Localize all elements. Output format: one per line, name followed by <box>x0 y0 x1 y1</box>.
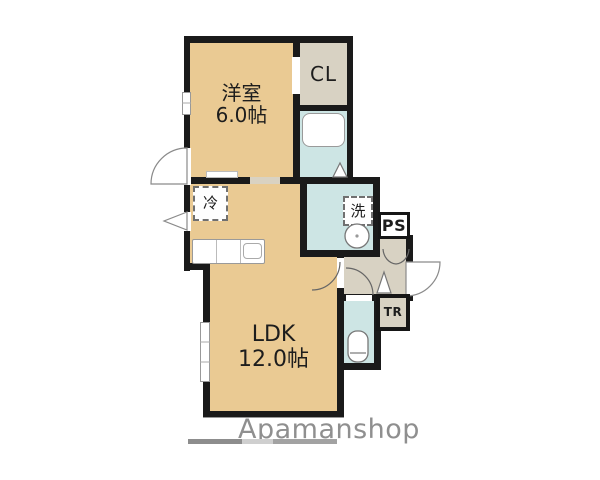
pipe-space-label: PS <box>382 217 406 235</box>
hallway-floor <box>344 257 406 294</box>
ldk-window <box>200 322 210 382</box>
wall-entrance-right <box>406 235 413 262</box>
wall-left-step <box>184 263 210 270</box>
kitchen-sink-icon <box>243 243 262 259</box>
small-window-opening <box>183 212 191 231</box>
refrigerator-label: 冷 <box>203 195 218 212</box>
closet-door-opening <box>292 57 300 94</box>
watermark-bar <box>273 439 337 444</box>
watermark-bar <box>188 439 242 444</box>
floorplan-canvas: 冷 洗 PS TR 洋室 6.0帖 CL LDK 12.0帖 Apam <box>0 0 600 480</box>
westroom-sliding-door <box>206 171 238 178</box>
western-room-name: 洋室 <box>190 82 293 104</box>
trunk-room-box: TR <box>376 294 410 331</box>
wall-westroom-ldk <box>184 177 380 184</box>
balcony-door-swing-icon <box>151 148 187 184</box>
balcony-door-opening <box>183 148 191 185</box>
pipe-space-box: PS <box>378 212 410 239</box>
wall-washroom-left <box>300 177 307 257</box>
trunk-room-label: TR <box>384 306 402 319</box>
kitchen-counter-icon <box>192 239 265 264</box>
washing-machine-box: 洗 <box>343 196 373 226</box>
counter-divider <box>216 240 217 263</box>
wall-closet-bath <box>293 105 353 111</box>
refrigerator-box: 冷 <box>193 186 228 221</box>
entrance-floor <box>380 239 406 257</box>
watermark-bar <box>242 439 273 444</box>
western-room-label: 洋室 6.0帖 <box>190 82 293 127</box>
ldk-size: 12.0帖 <box>210 348 337 373</box>
toilet-room-floor <box>344 301 374 363</box>
washer-label: 洗 <box>350 203 365 220</box>
western-room-size: 6.0帖 <box>190 104 293 126</box>
ldk-name: LDK <box>210 323 337 348</box>
ldk-label: LDK 12.0帖 <box>210 323 337 372</box>
westroom-sliding-opening <box>250 177 280 184</box>
toilet-door-opening <box>346 295 372 301</box>
ldk-door-opening <box>337 258 344 288</box>
wall-top <box>184 36 353 43</box>
closet-label: CL <box>300 63 347 85</box>
wall-toilet-bottom <box>337 363 381 370</box>
counter-divider <box>240 240 241 263</box>
bathtub-icon <box>302 113 345 147</box>
